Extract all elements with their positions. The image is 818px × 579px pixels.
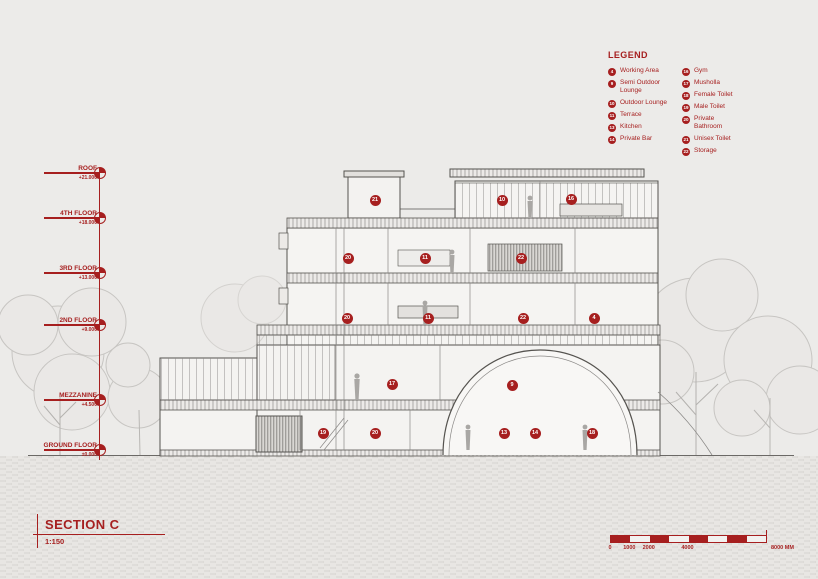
room-marker: 13 bbox=[499, 428, 510, 439]
legend-item-label: Private Bar bbox=[620, 135, 652, 143]
room-marker: 22 bbox=[518, 313, 529, 324]
scale-bar-tick-label: 4000 bbox=[681, 545, 693, 551]
level-line bbox=[44, 272, 100, 273]
scale-bar-segment bbox=[708, 536, 727, 542]
legend-number-badge: 17 bbox=[682, 80, 690, 88]
title-tick-icon bbox=[37, 514, 38, 548]
legend-item-label: Private Bathroom bbox=[694, 115, 742, 132]
scale-bar-end-tick bbox=[766, 530, 767, 542]
level-label: 3RD FLOOR bbox=[59, 265, 97, 272]
level-line bbox=[44, 324, 100, 325]
legend-item: 16Gym bbox=[682, 67, 744, 76]
legend-column: 4Working Area9Semi Outdoor Lounge10Outdo… bbox=[608, 67, 670, 159]
legend-columns: 4Working Area9Semi Outdoor Lounge10Outdo… bbox=[608, 67, 808, 159]
room-marker: 22 bbox=[516, 253, 527, 264]
level-line bbox=[44, 172, 100, 173]
legend-item: 9Semi Outdoor Lounge bbox=[608, 79, 670, 96]
legend-item-label: Semi Outdoor Lounge bbox=[620, 79, 668, 96]
legend-number-badge: 13 bbox=[608, 124, 616, 132]
legend-item-label: Outdoor Lounge bbox=[620, 99, 667, 107]
legend-number-badge: 19 bbox=[682, 104, 690, 112]
legend-number-badge: 18 bbox=[682, 92, 690, 100]
legend-item: 22Storage bbox=[682, 147, 744, 156]
legend-number-badge: 21 bbox=[682, 136, 690, 144]
legend: LEGEND 4Working Area9Semi Outdoor Lounge… bbox=[608, 50, 808, 159]
legend-item-label: Storage bbox=[694, 147, 717, 155]
legend-number-badge: 16 bbox=[682, 68, 690, 76]
level-label: 2ND FLOOR bbox=[59, 317, 97, 324]
scale-bar-segment bbox=[669, 536, 688, 542]
legend-item: 20Private Bathroom bbox=[682, 115, 744, 132]
scale-bar-end-label: 8000 MM bbox=[771, 545, 794, 551]
legend-number-badge: 20 bbox=[682, 116, 690, 124]
legend-item: 19Male Toilet bbox=[682, 103, 744, 112]
level-label: GROUND FLOOR bbox=[44, 442, 97, 449]
legend-number-badge: 4 bbox=[608, 68, 616, 76]
room-marker: 19 bbox=[318, 428, 329, 439]
room-marker: 9 bbox=[507, 380, 518, 391]
room-marker: 17 bbox=[387, 379, 398, 390]
drawing-sheet: ROOF+21.0004TH FLOOR+18.0003RD FLOOR+13.… bbox=[0, 0, 818, 579]
scale-bar-tick-label: 1000 bbox=[623, 545, 635, 551]
level-target-icon bbox=[94, 212, 106, 224]
scale-bar: 01000200040008000 MM bbox=[608, 531, 808, 559]
level-line bbox=[44, 217, 100, 218]
legend-item: 11Terrace bbox=[608, 111, 670, 120]
scale-bar-segment bbox=[689, 536, 708, 542]
legend-item-label: Female Toilet bbox=[694, 91, 733, 99]
room-marker: 18 bbox=[587, 428, 598, 439]
legend-item: 17Musholla bbox=[682, 79, 744, 88]
level-label: MEZZANINE bbox=[59, 392, 97, 399]
scale-bar-segment bbox=[727, 536, 746, 542]
legend-number-badge: 11 bbox=[608, 112, 616, 120]
level-target-icon bbox=[94, 167, 106, 179]
level-target-icon bbox=[94, 319, 106, 331]
title-underline bbox=[33, 534, 165, 535]
room-marker: 14 bbox=[530, 428, 541, 439]
level-line bbox=[44, 449, 100, 450]
scale-bar-tick-label: 2000 bbox=[643, 545, 655, 551]
legend-item-label: Male Toilet bbox=[694, 103, 725, 111]
legend-number-badge: 10 bbox=[608, 100, 616, 108]
legend-number-badge: 9 bbox=[608, 80, 616, 88]
legend-item: 13Kitchen bbox=[608, 123, 670, 132]
legend-item-label: Unisex Toilet bbox=[694, 135, 731, 143]
scale-bar-segment bbox=[650, 536, 669, 542]
legend-item-label: Gym bbox=[694, 67, 708, 75]
room-marker: 10 bbox=[497, 195, 508, 206]
legend-item-label: Working Area bbox=[620, 67, 659, 75]
room-marker: 20 bbox=[342, 313, 353, 324]
room-marker: 21 bbox=[370, 195, 381, 206]
legend-number-badge: 14 bbox=[608, 136, 616, 144]
level-target-icon bbox=[94, 394, 106, 406]
scale-bar-segment bbox=[611, 536, 630, 542]
legend-item-label: Terrace bbox=[620, 111, 642, 119]
room-marker: 4 bbox=[589, 313, 600, 324]
level-target-icon bbox=[94, 267, 106, 279]
room-marker: 16 bbox=[566, 194, 577, 205]
legend-item-label: Musholla bbox=[694, 79, 720, 87]
legend-item: 14Private Bar bbox=[608, 135, 670, 144]
legend-title: LEGEND bbox=[608, 50, 808, 60]
room-marker: 11 bbox=[423, 313, 434, 324]
level-line bbox=[44, 399, 100, 400]
legend-item: 18Female Toilet bbox=[682, 91, 744, 100]
level-target-icon bbox=[94, 444, 106, 456]
legend-item-label: Kitchen bbox=[620, 123, 642, 131]
scale-bar-tick-label: 0 bbox=[608, 545, 611, 551]
section-scale: 1:150 bbox=[45, 537, 165, 546]
scale-bar-segment bbox=[747, 536, 766, 542]
legend-item: 10Outdoor Lounge bbox=[608, 99, 670, 108]
legend-item: 21Unisex Toilet bbox=[682, 135, 744, 144]
room-marker: 20 bbox=[343, 253, 354, 264]
legend-column: 16Gym17Musholla18Female Toilet19Male Toi… bbox=[682, 67, 744, 159]
section-title-block: SECTION C 1:150 bbox=[33, 517, 165, 546]
legend-item: 4Working Area bbox=[608, 67, 670, 76]
level-label: 4TH FLOOR bbox=[60, 210, 97, 217]
legend-number-badge: 22 bbox=[682, 148, 690, 156]
scale-bar-segments bbox=[610, 535, 767, 543]
room-marker: 20 bbox=[370, 428, 381, 439]
section-title: SECTION C bbox=[45, 517, 165, 532]
room-marker: 11 bbox=[420, 253, 431, 264]
scale-bar-segment bbox=[630, 536, 649, 542]
